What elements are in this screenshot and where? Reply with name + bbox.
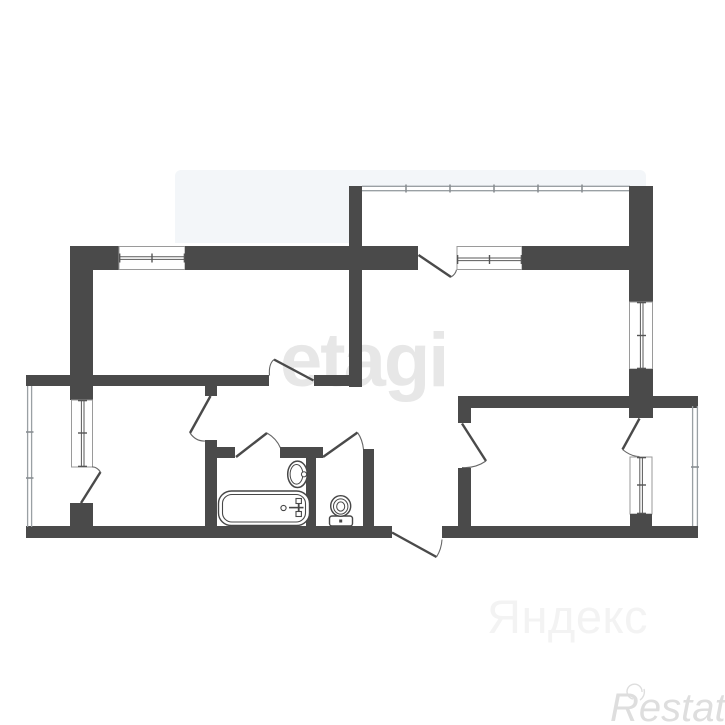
svg-text:etagi: etagi [280, 318, 447, 403]
svg-text:Яндекс: Яндекс [487, 590, 648, 643]
